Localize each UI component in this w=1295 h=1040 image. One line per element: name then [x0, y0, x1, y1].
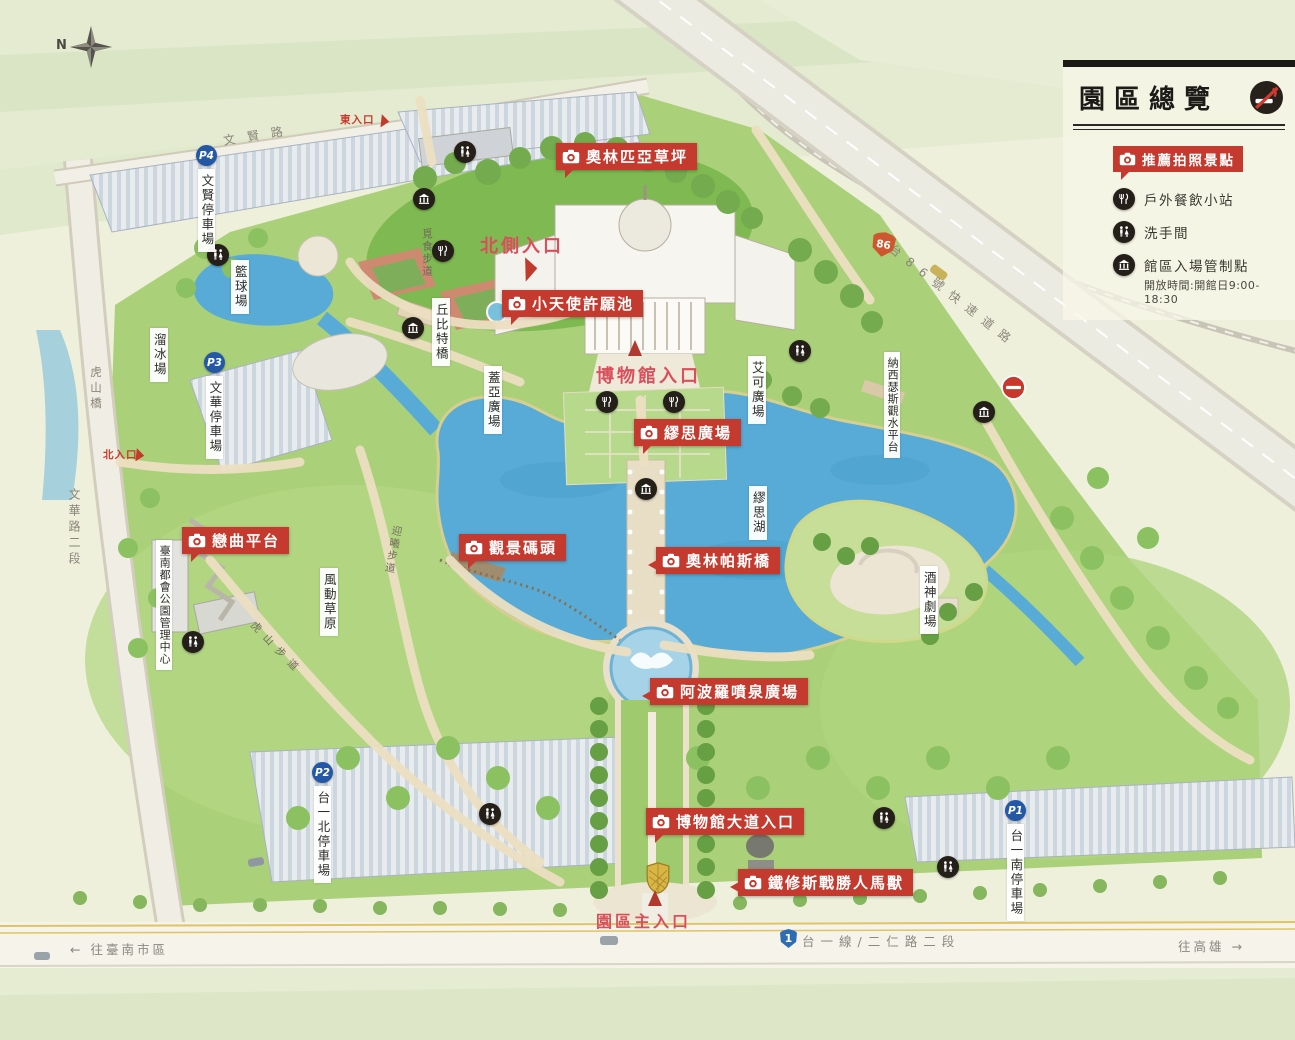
place-basketball-court: 籃球場 — [231, 260, 249, 314]
museum-entrance-marker-icon — [628, 340, 642, 356]
restroom-icon — [182, 631, 204, 653]
camera-icon — [562, 149, 580, 164]
camera-icon — [465, 540, 483, 555]
legend-panel: 園區總覽 推薦拍照景點 戶外餐飲小站 洗手間 — [1063, 60, 1295, 320]
legend-item-dining: 戶外餐飲小站 — [1113, 188, 1285, 210]
gate-icon — [413, 188, 435, 210]
compass-star-icon — [70, 26, 112, 68]
legend-item-restroom: 洗手間 — [1113, 221, 1285, 243]
legend-item-gate: 館區入場管制點 — [1113, 254, 1285, 276]
no-entry-icon — [1001, 375, 1026, 400]
place-park-management-center: 臺南都會公園管理中心 — [156, 540, 172, 670]
photo-spot-muse-plaza: 繆思廣場 — [634, 419, 741, 446]
dining-icon — [596, 391, 618, 413]
north-side-entrance-label: 北側入口 — [480, 232, 564, 258]
photo-spot-angel-wishing-pond: 小天使許願池 — [502, 290, 643, 317]
parking-badge: P3 — [204, 352, 225, 373]
restroom-icon — [479, 803, 501, 825]
north-entrance-label: 北入口 — [103, 447, 138, 462]
parking-p3: P3 文華停車場 — [204, 352, 225, 459]
direction-to-kaohsiung: 往高雄 → — [1178, 936, 1245, 955]
museum-entrance-label: 博物館入口 — [596, 362, 701, 388]
no-smoking-icon — [1250, 81, 1283, 114]
gate-icon — [635, 478, 657, 500]
road-hushan-bridge: 虎山橋 — [88, 366, 104, 413]
place-gaia-plaza: 蓋亞廣場 — [484, 366, 502, 434]
photo-spot-theseus-statue: 鐵修斯戰勝人馬獸 — [738, 869, 913, 896]
photo-spot-love-song-platform: 戀曲平台 — [182, 527, 289, 554]
legend-photo-label: 推薦拍照景點 — [1142, 149, 1235, 169]
legend-dining-label: 戶外餐飲小站 — [1144, 189, 1234, 209]
parking-label: 台一北停車場 — [314, 786, 332, 883]
parking-badge: P1 — [1005, 800, 1026, 821]
restroom-icon — [789, 340, 811, 362]
parking-p1: P1 台一南停車場 — [1005, 800, 1026, 921]
east-entrance-label: 東入口 — [340, 112, 375, 127]
restroom-icon — [873, 807, 895, 829]
photo-spot-olympia-lawn: 奧林匹亞草坪 — [556, 143, 697, 170]
place-narcissus-deck: 納西瑟斯觀水平台 — [884, 352, 900, 458]
parking-label: 台一南停車場 — [1007, 824, 1025, 921]
legend-restroom-label: 洗手間 — [1144, 222, 1189, 242]
park-overview-map: N 園區總覽 推薦拍照景點 戶外餐飲小站 洗 — [0, 0, 1295, 1040]
photo-spot-label: 戀曲平台 — [212, 530, 280, 551]
parking-badge: P2 — [312, 762, 333, 783]
photo-spot-viewing-pier: 觀景碼頭 — [459, 534, 566, 561]
photo-spot-label: 鐵修斯戰勝人馬獸 — [768, 872, 904, 893]
parking-p2: P2 台一北停車場 — [312, 762, 333, 883]
camera-icon — [1119, 152, 1136, 166]
camera-icon — [662, 553, 680, 568]
camera-icon — [188, 533, 206, 548]
place-skating-rink: 溜冰場 — [150, 328, 168, 382]
photo-spot-label: 小天使許願池 — [532, 293, 634, 314]
map-title: 園區總覽 — [1079, 79, 1219, 116]
dining-icon — [663, 391, 685, 413]
parking-label: 文華停車場 — [206, 376, 224, 459]
compass-north-label: N — [56, 38, 67, 53]
title-divider — [1073, 124, 1285, 130]
camera-icon — [652, 814, 670, 829]
restroom-icon — [937, 856, 959, 878]
place-dionysus-theater: 酒神劇場 — [920, 566, 938, 634]
photo-spot-apollo-fountain-plaza: 阿波羅噴泉廣場 — [650, 678, 808, 705]
opening-hours-note: 開放時間:開館日9:00-18:30 — [1144, 277, 1285, 306]
dining-icon — [1113, 188, 1135, 210]
camera-icon — [744, 875, 762, 890]
place-muse-lake: 繆思湖 — [749, 486, 767, 540]
road-wenhua-sec2: 文華路二段 — [66, 488, 83, 568]
restroom-icon — [454, 141, 476, 163]
photo-spot-label: 博物館大道入口 — [676, 811, 795, 832]
gate-icon — [1113, 254, 1135, 276]
parking-badge: P4 — [196, 145, 217, 166]
photo-spot-label: 繆思廣場 — [664, 422, 732, 443]
main-entrance-marker-icon — [648, 890, 662, 906]
camera-icon — [508, 296, 526, 311]
parking-p4: P4 文賢停車場 — [196, 145, 217, 252]
photo-spot-label: 奧林帕斯橋 — [686, 550, 771, 571]
gate-icon — [973, 401, 995, 423]
legend-item-photo-spot: 推薦拍照景點 — [1113, 146, 1243, 172]
camera-icon — [640, 425, 658, 440]
gate-icon — [402, 317, 424, 339]
compass: N — [56, 26, 112, 68]
direction-to-tainan: ← 往臺南市區 — [70, 939, 168, 958]
parking-label: 文賢停車場 — [198, 169, 216, 252]
photo-spot-label: 奧林匹亞草坪 — [586, 146, 688, 167]
place-echo-plaza: 艾可廣場 — [748, 356, 766, 424]
restroom-icon — [1113, 221, 1135, 243]
dining-icon — [432, 240, 454, 262]
legend-gate-label: 館區入場管制點 — [1144, 255, 1249, 275]
camera-icon — [656, 684, 674, 699]
main-entrance-label: 園區主入口 — [596, 908, 691, 932]
panel-top-bar — [1063, 60, 1295, 67]
photo-spot-olympus-bridge: 奧林帕斯橋 — [656, 547, 780, 574]
road-provincial-1: 台一線/二仁路二段 — [802, 931, 960, 950]
photo-spot-label: 阿波羅噴泉廣場 — [680, 681, 799, 702]
place-cupid-bridge: 丘比特橋 — [432, 298, 450, 366]
photo-spot-label: 觀景碼頭 — [489, 537, 557, 558]
place-wind-meadow: 風動草原 — [320, 568, 338, 636]
photo-spot-museum-avenue-entrance: 博物館大道入口 — [646, 808, 804, 835]
